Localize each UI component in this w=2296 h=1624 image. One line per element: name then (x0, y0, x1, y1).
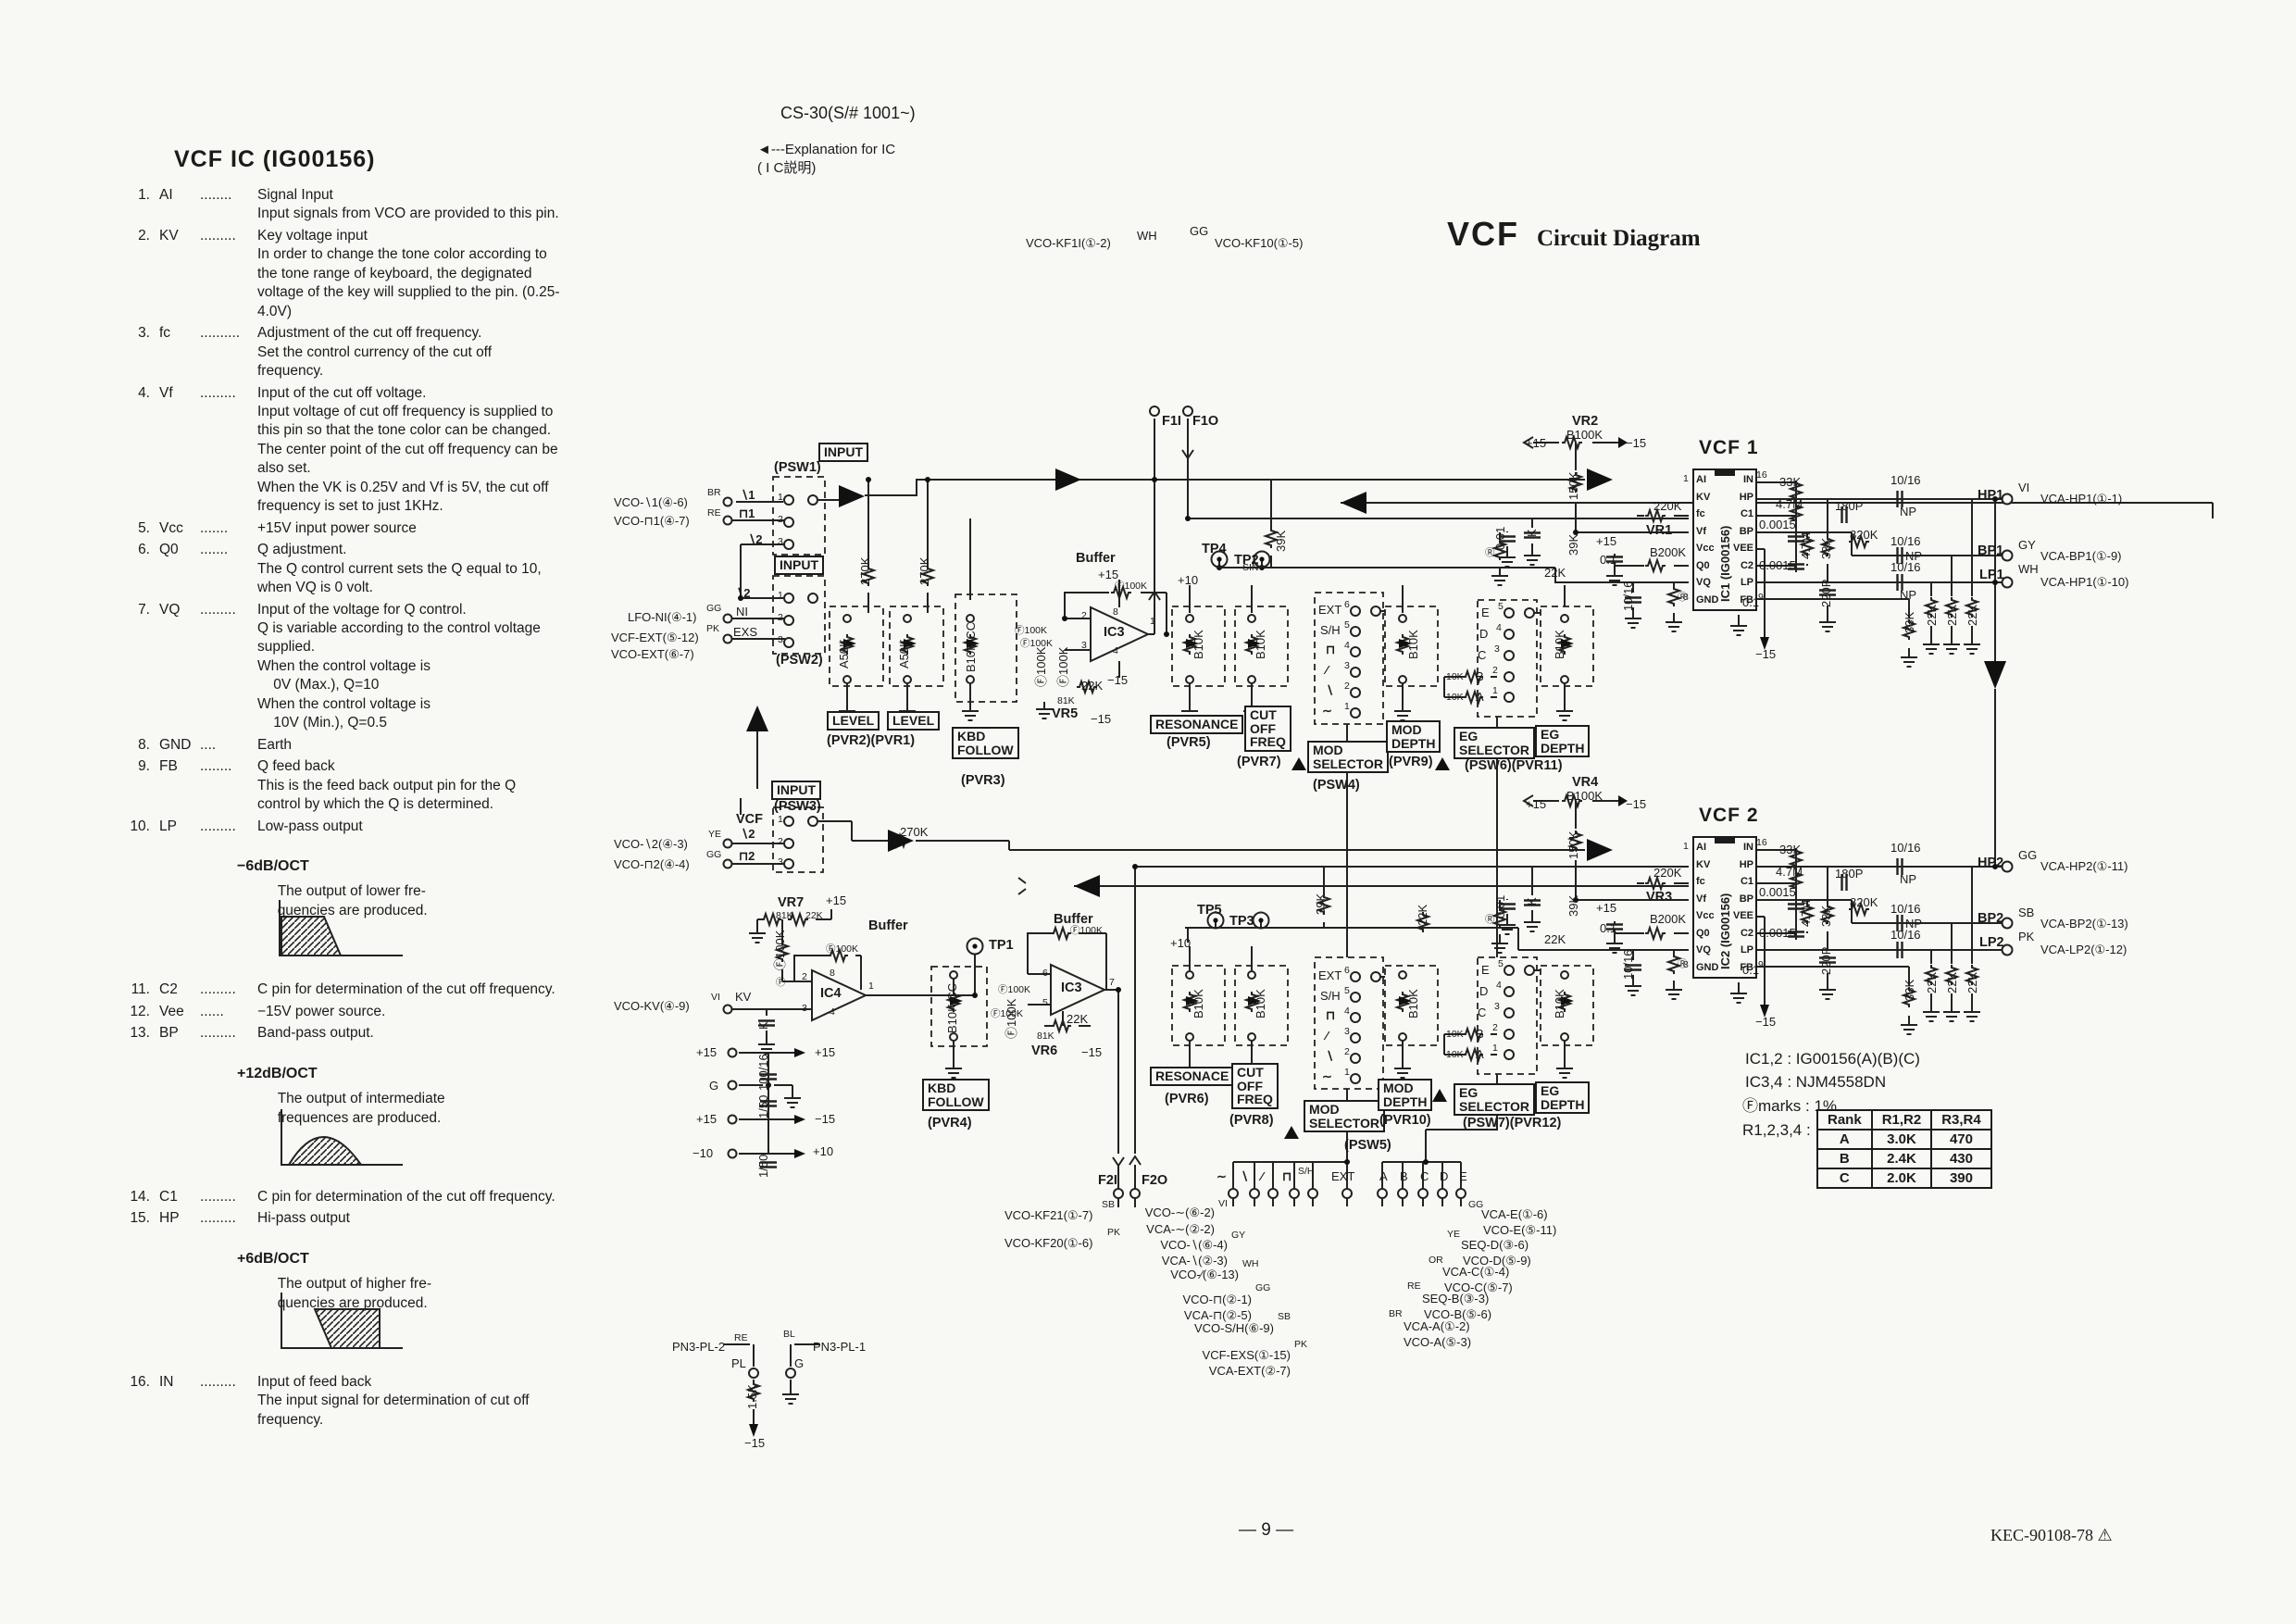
ground-symbols (749, 548, 1980, 1404)
pin-name: Vcc (150, 519, 200, 538)
ic1-left-pins: AIKVfcVfVccQ0VQGND (1694, 470, 1720, 609)
rank-header-cell: R3,R4 (1931, 1110, 1991, 1130)
pin-description-item: 4.Vf.........Input of the cut off voltag… (119, 384, 561, 517)
pin-description: Adjustment of the cut off frequency. Set… (257, 324, 561, 381)
item-number: 6. (119, 541, 150, 597)
pin-name: C2 (150, 981, 200, 999)
lowpass-response-row: −6dB/OCT The output of lower fre- quenci… (220, 858, 561, 934)
document-code: KEC-90108-78 ⚠ (1990, 1526, 2113, 1545)
rank-header-cell: Rank (1817, 1110, 1872, 1130)
dots: ......... (200, 1373, 257, 1430)
ic-pin-label: C2 (1733, 928, 1753, 939)
pin-name: BP (150, 1024, 200, 1185)
warning-triangle-icon: ⚠ (2098, 1526, 2113, 1544)
item-number: 8. (119, 736, 150, 755)
ic-pin-label: fc (1696, 508, 1718, 519)
pin-description-item: 10.LP......... Low-pass output −6dB/OCT … (119, 818, 561, 979)
explanation-note: ◄---Explanation for IC ( I C説明) (757, 141, 895, 177)
pin-name: GND (150, 736, 200, 755)
pin-description: Input of the cut off voltage. Input volt… (257, 384, 561, 517)
rank-table-body: A 3.0K 470 B 2.4K 430 C 2.0K 390 (1817, 1130, 1991, 1188)
item-number: 12. (119, 1003, 150, 1021)
item-number: 15. (119, 1209, 150, 1370)
pin-description-item: 14.C1.........C pin for determination of… (119, 1188, 561, 1206)
item-number: 5. (119, 519, 150, 538)
hipass-response-row: +6dB/OCT The output of higher fre- quenc… (220, 1251, 561, 1327)
ic1-vcf-chip: AIKVfcVfVccQ0VQGND IC1 (IG00156) INHPC1B… (1692, 468, 1757, 611)
ic-pin-label: C2 (1733, 560, 1753, 571)
ic1-right-pins: INHPC1BPVEEC2LPFB (1731, 470, 1755, 609)
ic-pin-label: FB (1733, 594, 1753, 606)
pin-description-item: 13.BP......... Band-pass output. +12dB/O… (119, 1024, 561, 1185)
pin-description: Earth (257, 736, 561, 755)
ic-pin-label: C1 (1733, 508, 1753, 519)
pin-description: Key voltage input In order to change the… (257, 227, 561, 321)
hipass-response-icon: +6dB/OCT (220, 1251, 268, 1327)
pin-description-item: 1.AI........Signal Input Input signals f… (119, 186, 561, 224)
pin-description-item: 9.FB........Q feed back This is the feed… (119, 757, 561, 814)
dots: ........ (200, 186, 257, 224)
graph-label: −6dB/OCT (237, 856, 309, 876)
dots: ....... (200, 541, 257, 597)
dots: ......... (200, 1188, 257, 1206)
item-number: 9. (119, 757, 150, 814)
item-number: 13. (119, 1024, 150, 1185)
pin-description: Band-pass output. +12dB/OCT The output o… (257, 1024, 561, 1185)
ic-pin-label: FB (1733, 962, 1753, 973)
ic-pin-label: fc (1696, 876, 1718, 887)
pin-description: Q adjustment. The Q control current sets… (257, 541, 561, 597)
ic-pin-label: C1 (1733, 876, 1753, 887)
pin-description: Low-pass output −6dB/OCT The output of l… (257, 818, 561, 979)
ic-pin-label: VEE (1733, 543, 1753, 554)
pin-description-item: 12.Vee......−15V power source. (119, 1003, 561, 1021)
ic-pin-label: Vf (1696, 526, 1718, 537)
pin-description-item: 11.C2.........C pin for determination of… (119, 981, 561, 999)
ic-pin-label: HP (1733, 859, 1753, 870)
contact-circles (724, 406, 2013, 1378)
pin-name: FB (150, 757, 200, 814)
ic-pin-label: VQ (1696, 944, 1718, 956)
rank-cell: 2.4K (1872, 1149, 1932, 1168)
ic-pin-label: Vcc (1696, 543, 1718, 554)
pin-description: Input of the voltage for Q control. Q is… (257, 601, 561, 733)
rank-cell: A (1817, 1130, 1872, 1149)
document-code-text: KEC-90108-78 (1990, 1526, 2093, 1544)
item-number: 16. (119, 1373, 150, 1430)
ic-pin-label: BP (1733, 526, 1753, 537)
ic-notch (1715, 470, 1735, 476)
rank-cell: 430 (1931, 1149, 1991, 1168)
rank-cell: 390 (1931, 1168, 1991, 1188)
ic-pin-label: IN (1733, 842, 1753, 853)
pin-name: fc (150, 324, 200, 381)
dots: .... (200, 736, 257, 755)
pin-description: Q feed back This is the feed back output… (257, 757, 561, 814)
pin-description-item: 15.HP......... Hi-pass output +6dB/OCT T… (119, 1209, 561, 1370)
pin-description: −15V power source. (257, 1003, 561, 1021)
dots: ......... (200, 601, 257, 733)
pin-description-item: 6.Q0.......Q adjustment. The Q control c… (119, 541, 561, 597)
ic-pin-label: Q0 (1696, 928, 1718, 939)
component-boxes (773, 477, 1593, 1089)
rank-cell: 2.0K (1872, 1168, 1932, 1188)
dots: ....... (200, 519, 257, 538)
item-number: 4. (119, 384, 150, 517)
pin-description-item: 7.VQ.........Input of the voltage for Q … (119, 601, 561, 733)
pin-name: Vf (150, 384, 200, 517)
rank-table-row: A 3.0K 470 (1817, 1130, 1991, 1149)
pin-name: Vee (150, 1003, 200, 1021)
signal-flow-arrows (746, 437, 2006, 1437)
ic-pin-label: LP (1733, 944, 1753, 956)
ic1-name: IC1 (IG00156) (1718, 526, 1732, 602)
ic2-left-pins: AIKVfcVfVccQ0VQGND (1694, 838, 1720, 977)
ic-pin-label: IN (1733, 474, 1753, 485)
pin-description-text: Hi-pass output (257, 1210, 350, 1226)
pin-description-text: Band-pass output. (257, 1025, 374, 1041)
ic-notch (1715, 838, 1735, 843)
service-manual-page: CS-30(S/# 1001~) ◄---Explanation for IC … (0, 0, 2296, 1624)
ic-pin-label: LP (1733, 577, 1753, 588)
pin-description: +15V input power source (257, 519, 561, 538)
vcf-ic-description-panel: VCF IC (IG00156) 1.AI........Signal Inpu… (119, 146, 561, 1432)
page-number: — 9 — (1239, 1520, 1293, 1541)
pin-description-item: 5.Vcc.......+15V input power source (119, 519, 561, 538)
ic-pin-label: Vcc (1696, 910, 1718, 921)
item-number: 14. (119, 1188, 150, 1206)
item-number: 10. (119, 818, 150, 979)
ic-pin-label: KV (1696, 859, 1718, 870)
bandpass-response-icon: +12dB/OCT (220, 1066, 268, 1142)
dots: .......... (200, 324, 257, 381)
item-number: 2. (119, 227, 150, 321)
bandpass-response-row: +12dB/OCT The output of intermediate fre… (220, 1066, 561, 1142)
rank-cell: 470 (1931, 1130, 1991, 1149)
wire-chevrons (1018, 437, 1533, 1166)
ic2-vcf-chip: AIKVfcVfVccQ0VQGND IC2 (IG00156) INHPC1B… (1692, 836, 1757, 979)
pin-description: Input of feed back The input signal for … (257, 1373, 561, 1430)
pin-name: C1 (150, 1188, 200, 1206)
pin-description: Signal Input Input signals from VCO are … (257, 186, 561, 224)
item-number: 11. (119, 981, 150, 999)
opamp-buffers (812, 607, 1148, 1020)
item-number: 1. (119, 186, 150, 224)
panel-title: VCF IC (IG00156) (174, 146, 561, 173)
graph-label: +12dB/OCT (237, 1064, 318, 1083)
pin-name: KV (150, 227, 200, 321)
ic-pin-label: GND (1696, 594, 1718, 606)
ic-pin-label: VQ (1696, 577, 1718, 588)
resistor-rank-table: Rank R1,R2 R3,R4 A 3.0K 470 B 2.4K 430 C… (1816, 1109, 1992, 1189)
rank-cell: B (1817, 1149, 1872, 1168)
ic-pin-label: HP (1733, 492, 1753, 503)
ic-pin-label: VEE (1733, 910, 1753, 921)
ic-pin-label: Q0 (1696, 560, 1718, 571)
rank-table-row: B 2.4K 430 (1817, 1149, 1991, 1168)
dots: ......... (200, 981, 257, 999)
pin-name: VQ (150, 601, 200, 733)
item-number: 3. (119, 324, 150, 381)
dots: ......... (200, 384, 257, 517)
rank-header-cell: R1,R2 (1872, 1110, 1932, 1130)
graph-label: +6dB/OCT (237, 1249, 309, 1268)
lowpass-response-icon: −6dB/OCT (220, 858, 268, 934)
pin-description-item: 2.KV.........Key voltage input In order … (119, 227, 561, 321)
dots: ...... (200, 1003, 257, 1021)
pin-description-item: 16.IN.........Input of feed back The inp… (119, 1373, 561, 1430)
pin-name: HP (150, 1209, 200, 1370)
schematic-canvas (574, 213, 2296, 1509)
dots: ......... (200, 227, 257, 321)
wires (724, 418, 2213, 1424)
pin-description: C pin for determination of the cut off f… (257, 1188, 561, 1206)
ic-pin-label: BP (1733, 893, 1753, 905)
pin-description: Hi-pass output +6dB/OCT The output of hi… (257, 1209, 561, 1370)
pin-description-text: Low-pass output (257, 818, 363, 834)
rank-table-header: Rank R1,R2 R3,R4 (1817, 1110, 1991, 1130)
rank-table-row: C 2.0K 390 (1817, 1168, 1991, 1188)
rank-cell: 3.0K (1872, 1130, 1932, 1149)
ic-pin-label: GND (1696, 962, 1718, 973)
ic2-right-pins: INHPC1BPVEEC2LPFB (1731, 838, 1755, 977)
pin-description-item: 8.GND....Earth (119, 736, 561, 755)
pin-description-item: 3.fc..........Adjustment of the cut off … (119, 324, 561, 381)
dots: ........ (200, 757, 257, 814)
ic-pin-label: KV (1696, 492, 1718, 503)
pin-name: LP (150, 818, 200, 979)
ic2-name: IC2 (IG00156) (1718, 893, 1732, 969)
pin-name: Q0 (150, 541, 200, 597)
pin-name: AI (150, 186, 200, 224)
rank-cell: C (1817, 1168, 1872, 1188)
ic-pin-label: Vf (1696, 893, 1718, 905)
model-number: CS-30(S/# 1001~) (780, 104, 916, 123)
item-number: 7. (119, 601, 150, 733)
pin-description: C pin for determination of the cut off f… (257, 981, 561, 999)
pin-name: IN (150, 1373, 200, 1430)
